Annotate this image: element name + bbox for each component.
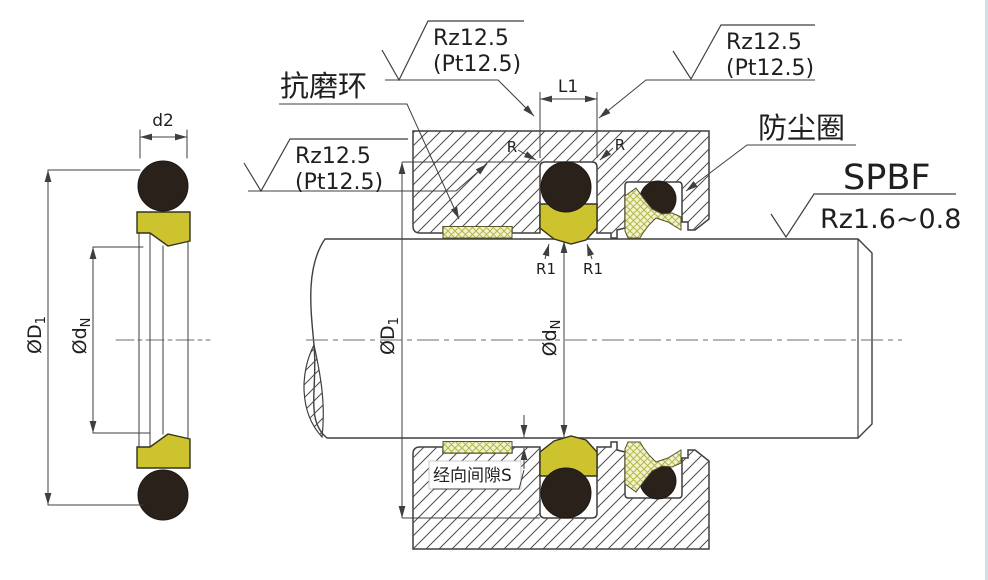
wear-ring-bottom xyxy=(443,442,512,454)
dim-d2 xyxy=(140,130,187,158)
left-view-seal-section: d2 ØD1 ØdN xyxy=(24,111,210,520)
radius-R1-left-label: R1 xyxy=(536,260,556,278)
dim-D1-left xyxy=(48,170,143,505)
svg-text:(Pt12.5): (Pt12.5) xyxy=(295,170,383,195)
radius-R1-right-label: R1 xyxy=(583,260,603,278)
wear-ring-label: 抗磨环 xyxy=(280,69,367,103)
seal-installation-diagram: d2 ØD1 ØdN xyxy=(0,0,988,580)
dust-seal-leader xyxy=(686,145,856,191)
radial-clearance-label: 经向间隙S xyxy=(433,466,512,486)
seal-body-bottom xyxy=(137,434,190,468)
dim-L1-label: L1 xyxy=(558,77,578,97)
o-ring-bottom xyxy=(138,470,188,520)
svg-text:Rz12.5: Rz12.5 xyxy=(295,144,371,169)
wear-ring-top xyxy=(443,227,512,239)
svg-text:Rz12.5: Rz12.5 xyxy=(433,26,509,51)
svg-text:(Pt12.5): (Pt12.5) xyxy=(433,52,521,77)
seal-model-label: SPBF xyxy=(843,158,930,198)
radius-R-right-label: R xyxy=(615,136,625,154)
o-ring-top xyxy=(138,161,188,211)
dim-dN-left-label: ØdN xyxy=(69,318,94,355)
buffer-oring-bottom xyxy=(541,468,591,518)
buffer-oring-top xyxy=(541,162,591,212)
spbf-rod-roughness: SPBF Rz1.6~0.8 xyxy=(771,158,961,237)
radius-R-left-label: R xyxy=(507,138,517,156)
dust-seal-label: 防尘圈 xyxy=(758,111,845,145)
roughness-callout-groove-left: Rz12.5 (Pt12.5) xyxy=(382,21,534,116)
dim-d2-label: d2 xyxy=(152,111,174,131)
svg-text:Rz12.5: Rz12.5 xyxy=(726,30,802,55)
dim-D1-left-label: ØD1 xyxy=(24,316,49,354)
seal-body-top xyxy=(137,212,190,246)
rod-roughness-label: Rz1.6~0.8 xyxy=(820,204,961,235)
svg-text:(Pt12.5): (Pt12.5) xyxy=(726,56,814,81)
technical-drawing-canvas: d2 ØD1 ØdN xyxy=(0,0,988,580)
roughness-callout-groove-right: Rz12.5 (Pt12.5) xyxy=(599,25,815,118)
